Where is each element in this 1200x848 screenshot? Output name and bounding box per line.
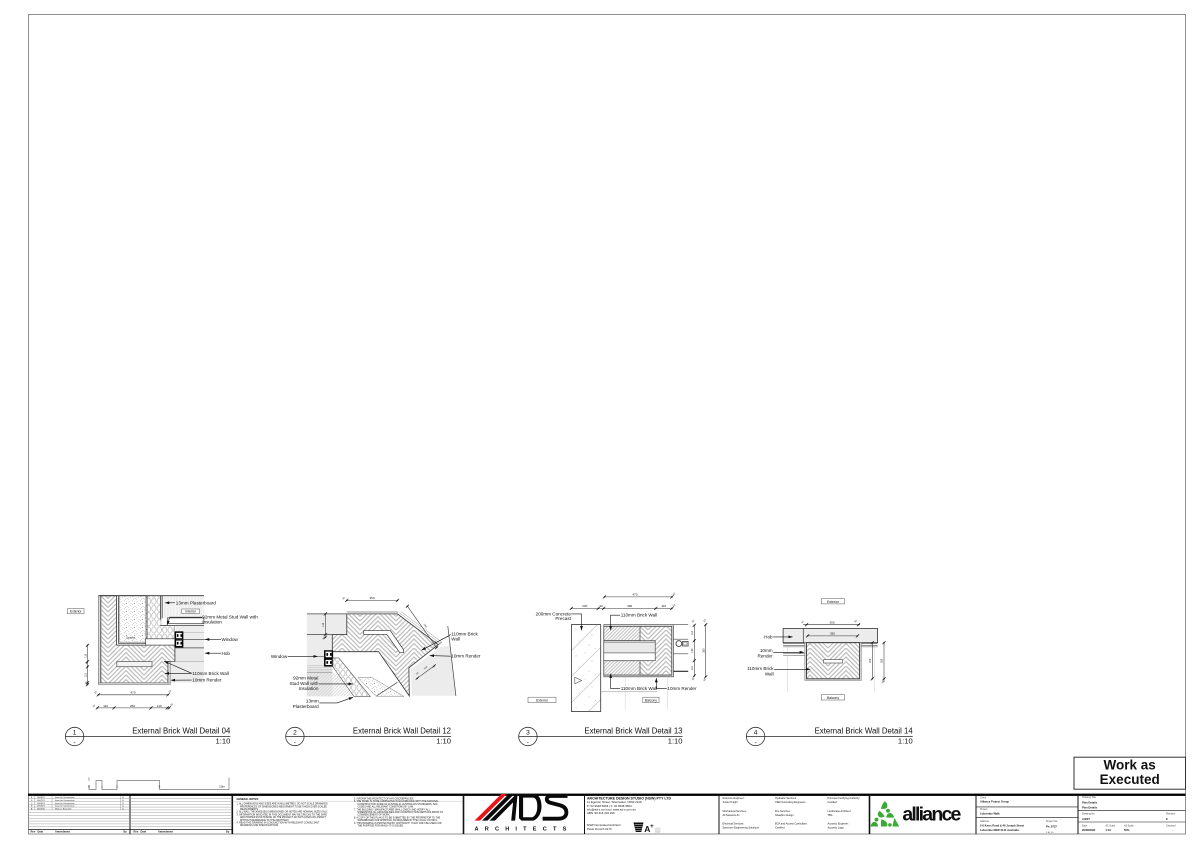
svg-text:External Brick Wall Detail 12: External Brick Wall Detail 12 [353,727,451,736]
svg-text:Project No:: Project No: [1046,820,1058,823]
svg-text:Insulation: Insulation [202,620,222,625]
svg-text:COMMENCEMENT OF WORK.: COMMENCEMENT OF WORK. [358,815,391,817]
svg-text:+: + [650,823,654,830]
svg-text:1:10: 1:10 [898,737,913,746]
svg-text:110mm Brick Wall: 110mm Brick Wall [621,686,658,691]
svg-text:E: E [1166,817,1168,821]
svg-text:110: 110 [103,704,108,708]
svg-text:110: 110 [157,704,162,708]
svg-text:10mm: 10mm [760,648,773,653]
svg-text:16/07/21: 16/07/21 [37,800,46,802]
svg-text:2. ALL WALL THICKNESSES DIMEN: 2. ALL WALL THICKNESSES DIMENSIONED OR N… [237,811,329,814]
svg-text:DRAWINGS AND SPECIFICATIONS.: DRAWINGS AND SPECIFICATIONS. [240,824,279,827]
svg-text:Work as: Work as [1104,758,1156,773]
svg-text:AND PROPER FUNCTIONING OF THE: AND PROPER FUNCTIONING OF THE PROJECT. D… [240,816,326,819]
svg-text:Structure Engineer:: Structure Engineer: [723,796,745,800]
svg-text:Gutyprin: Gutyprin [126,637,136,640]
svg-text:5: 5 [159,785,161,789]
svg-text:.: . [1172,829,1173,832]
svg-text:External Brick Wall Detail 13: External Brick Wall Detail 13 [584,727,682,736]
svg-text:Principal Certifying Authority: Principal Certifying Authority: [828,796,861,800]
svg-text:5. INFORM THE ARCHITECT OF AN: 5. INFORM THE ARCHITECT OF ANY DISCREPAN… [354,798,414,801]
svg-text:26/09/20: 26/09/20 [37,808,46,810]
svg-text:10: 10 [94,690,98,694]
svg-text:Hydraulic Services:: Hydraulic Services: [775,796,797,800]
svg-text:Pn_0737: Pn_0737 [1046,825,1057,829]
svg-text:4. READ THIS DRAWING IN CONJU: 4. READ THIS DRAWING IN CONJUNCTION WITH… [237,822,320,825]
svg-text:External Brick Wall Detail 14: External Brick Wall Detail 14 [815,727,914,736]
svg-text:10: 10 [170,703,174,707]
svg-text:110: 110 [322,622,325,626]
svg-text:Issue for Construction: Issue for Construction [55,802,74,805]
svg-text:1:10: 1:10 [436,737,451,746]
svg-text:-: - [527,740,529,747]
svg-text:470: 470 [632,593,637,597]
svg-text:Acoustic Engineer:: Acoustic Engineer: [828,821,850,825]
svg-text:26/08/21: 26/08/21 [37,797,46,799]
svg-text:10: 10 [92,704,96,708]
svg-text:Insulation: Insulation [299,686,319,691]
svg-text:7. THE BUILDING / MANUFACTURE: 7. THE BUILDING / MANUFACTURER SHALL CHE… [354,808,431,811]
svg-text:0: 0 [88,785,90,789]
svg-text:470: 470 [130,691,135,695]
svg-text:Exterior: Exterior [536,699,549,703]
svg-text:Balcony: Balcony [827,696,839,700]
svg-text:Project: Project [980,808,988,811]
svg-text:By: By [124,830,128,834]
svg-text:Lidcombe Walk: Lidcombe Walk [980,811,1000,815]
svg-text:Balcony: Balcony [645,699,657,703]
svg-text:PREFERENCES OF DIMENSIONED MES: PREFERENCES OF DIMENSIONED MESURMENT TO … [240,805,327,808]
svg-text:Issue for Construction: Issue for Construction [55,799,74,802]
svg-text:Interior: Interior [185,610,196,614]
svg-text:2-6 Kerrs Road & 46 Joseph Str: 2-6 Kerrs Road & 46 Joseph Street [980,824,1024,828]
svg-text:10mm Render: 10mm Render [667,686,697,691]
svg-text:Plan Details: Plan Details [1082,805,1098,809]
svg-text:250: 250 [130,704,135,708]
svg-text:350: 350 [423,623,428,629]
svg-text:TBA: TBA [828,813,833,817]
svg-text:GENERAL NOTES:: GENERAL NOTES: [237,798,259,801]
svg-text:8. A COPY OF THIS PLAN IS TO: 8. A COPY OF THIS PLAN IS TO BE SUBMITTE… [354,816,441,819]
svg-text:110mm Brick Wall: 110mm Brick Wall [192,671,229,676]
svg-text:Stud Wall with: Stud Wall with [289,681,318,686]
svg-text:CONSTRUCTION CODE OF AUSTRALIA: CONSTRUCTION CODE OF AUSTRALIA, AUSTRALI… [358,803,438,806]
svg-text:Plasterboard: Plasterboard [293,704,319,709]
svg-text:1. ALL DIMENSIONS AND SIZES A: 1. ALL DIMENSIONS AND SIZES ARE IN MILLI… [237,803,329,806]
svg-text:Window: Window [222,637,239,642]
svg-text:1:10: 1:10 [1106,828,1112,832]
svg-text:10: 10 [854,619,858,623]
svg-text:CODES AND ALL RELEVANT CONDITI: CODES AND ALL RELEVANT CONDITIONS BY LAW… [358,806,414,809]
svg-text:Wall: Wall [765,671,774,676]
svg-text:Rev: Rev [31,830,36,834]
svg-text:BCA and Access Consultant:: BCA and Access Consultant: [775,821,808,825]
svg-text:Electrical Services:: Electrical Services: [723,821,745,825]
svg-text:10: 10 [703,678,707,682]
svg-text:10m: 10m [219,785,225,789]
svg-text:Lidcombe NSW 2141 Australia: Lidcombe NSW 2141 Australia [980,828,1019,832]
svg-text:Issue for Construction: Issue for Construction [55,805,74,808]
svg-text:50%: 50% [1124,828,1130,832]
svg-text:10: 10 [691,619,695,623]
svg-text:110: 110 [84,673,87,677]
svg-text:Plan Details: Plan Details [1082,800,1098,804]
svg-text:A3 Scale: A3 Scale [1124,824,1134,827]
svg-text:Alliance Project Group: Alliance Project Group [980,799,1009,803]
svg-text:DIMENSIONS, RL GROUNDLINES AND: DIMENSIONS, RL GROUNDLINES AND CONSTRUCT… [358,811,444,814]
svg-text:10/06/21: 10/06/21 [37,803,46,805]
svg-text:1:10: 1:10 [216,737,231,746]
svg-text:Amendment: Amendment [158,830,173,834]
svg-text:10: 10 [881,680,885,684]
svg-text:ABN: 90 616 216 196: ABN: 90 616 216 196 [587,811,615,815]
svg-text:Window: Window [271,654,288,659]
svg-text:3: 3 [526,729,530,736]
svg-text:10mm Render: 10mm Render [192,678,222,683]
svg-text:Hob: Hob [764,635,773,640]
svg-text:2: 2 [116,785,118,789]
svg-text:By: By [226,830,230,834]
svg-text:13mm Plasterboard: 13mm Plasterboard [176,600,217,605]
svg-text:Shawfire Design: Shawfire Design [775,813,794,817]
svg-text:10: 10 [342,596,346,600]
svg-text:Acoustic Logic: Acoustic Logic [828,825,845,829]
svg-text:Date: Date [38,830,44,834]
svg-text:Certified: Certified [828,800,838,804]
svg-text:4: 4 [754,729,758,736]
svg-text:Revision: Revision [1166,813,1176,816]
svg-text:MEASURMENTS.: MEASURMENTS. [240,808,259,811]
svg-text:WATERBOARD FOR APPROVAL AS REQ: WATERBOARD FOR APPROVAL AS REQUIRED BY T… [358,819,439,822]
svg-text:Render: Render [758,654,774,659]
svg-text:260: 260 [881,658,884,663]
svg-text:Certified: Certified [775,825,785,829]
svg-text:Date: Date [1082,824,1088,827]
svg-text:Mechanical Services:: Mechanical Services: [723,809,747,813]
svg-text:Wall: Wall [451,637,460,642]
svg-text:130: 130 [691,648,694,653]
svg-text:Rev: Rev [134,830,139,834]
svg-text:13mm: 13mm [306,698,319,703]
svg-text:-: - [754,740,756,747]
svg-text:6. THE WORK IS TO BE COMPLETE: 6. THE WORK IS TO BE COMPLETED IN ACCORD… [354,800,439,803]
svg-text:110: 110 [661,604,666,608]
svg-text:Exterior: Exterior [70,610,83,614]
svg-text:02/03/21: 02/03/21 [37,806,46,808]
svg-text:Issue for Construction: Issue for Construction [55,796,74,799]
svg-text:360: 360 [627,604,632,608]
svg-text:350: 350 [830,632,835,636]
svg-text:350: 350 [829,621,834,625]
svg-text:10: 10 [801,620,805,624]
svg-text:All Seasons Air: All Seasons Air [723,813,740,817]
svg-text:C&M Consulting Engineers: C&M Consulting Engineers [775,800,806,804]
svg-text:26/08/2021: 26/08/2021 [1082,828,1096,832]
svg-text:A1 Scale: A1 Scale [1106,824,1116,827]
svg-text:Xavier Knight: Xavier Knight [723,800,738,804]
svg-text:9. THIS DRAWING IS PROTECTED: 9. THIS DRAWING IS PROTECTED BY COPYRIGH… [354,822,442,825]
svg-text:10: 10 [691,677,695,681]
svg-text:10: 10 [672,603,676,607]
svg-text:Executed: Executed [1100,772,1160,787]
svg-text:30: 30 [599,604,603,608]
svg-text:3. INFORMATION INDICATED IN T: 3. INFORMATION INDICATED IN THIS DOCUMEN… [237,813,328,816]
svg-text:Date: Date [141,830,147,834]
svg-text:1:10: 1:10 [668,737,683,746]
svg-text:alliance: alliance [902,803,961,825]
svg-text:Address: Address [980,820,990,823]
svg-text:Precast: Precast [555,616,571,621]
svg-text:Pavlo Doroch 9170: Pavlo Doroch 9170 [587,827,612,831]
svg-text:Landscape Architect:: Landscape Architect: [828,809,852,813]
svg-text:-: - [73,740,75,747]
svg-text:10: 10 [672,592,676,596]
svg-text:110: 110 [84,653,87,657]
svg-text:A4227: A4227 [1082,817,1090,821]
svg-text:-: - [294,740,296,747]
svg-text:WITHOUT REFERENCE TO THE ARCHI: WITHOUT REFERENCE TO THE ARCHITECT. [240,819,289,822]
svg-text:1:10, 1:5: 1:10, 1:5 [1046,832,1053,834]
svg-text:Checked: Checked [1166,824,1176,827]
svg-text:10: 10 [703,618,707,622]
svg-text:Hob: Hob [222,651,231,656]
svg-text:110: 110 [691,666,694,670]
svg-text:1: 1 [101,785,103,789]
svg-text:350: 350 [702,648,705,653]
svg-text:110mm Brick: 110mm Brick [747,666,774,671]
svg-text:350: 350 [369,596,374,600]
svg-text:Fire Services:: Fire Services: [775,809,791,813]
svg-text:110mm Brick Wall: 110mm Brick Wall [621,613,658,618]
svg-text:1: 1 [73,729,77,736]
svg-text:110: 110 [691,630,694,634]
svg-text:Drawing Title: Drawing Title [1082,796,1096,799]
svg-text:Spectrum Engineering Solutions: Spectrum Engineering Solutions [723,825,760,829]
svg-text:10mm Render: 10mm Render [451,654,481,659]
svg-text:200: 200 [582,604,587,608]
svg-text:240: 240 [869,658,872,663]
svg-text:Exterior: Exterior [827,600,840,604]
svg-text:10: 10 [168,689,172,693]
svg-text:THE PURPOSE FOR WHICH IT IS IS: THE PURPOSE FOR WHICH IT IS ISSUED. [358,826,405,828]
svg-text:External Brick Wall Detail 04: External Brick Wall Detail 04 [132,727,231,736]
svg-text:2: 2 [293,729,297,736]
svg-text:ARCHITECTS: ARCHITECTS [474,827,572,833]
svg-text:Amendment: Amendment [55,830,70,834]
svg-text:Work as Executed: Work as Executed [55,807,71,810]
svg-text:Drawing No: Drawing No [1082,813,1095,816]
svg-text:Client: Client [980,796,986,799]
